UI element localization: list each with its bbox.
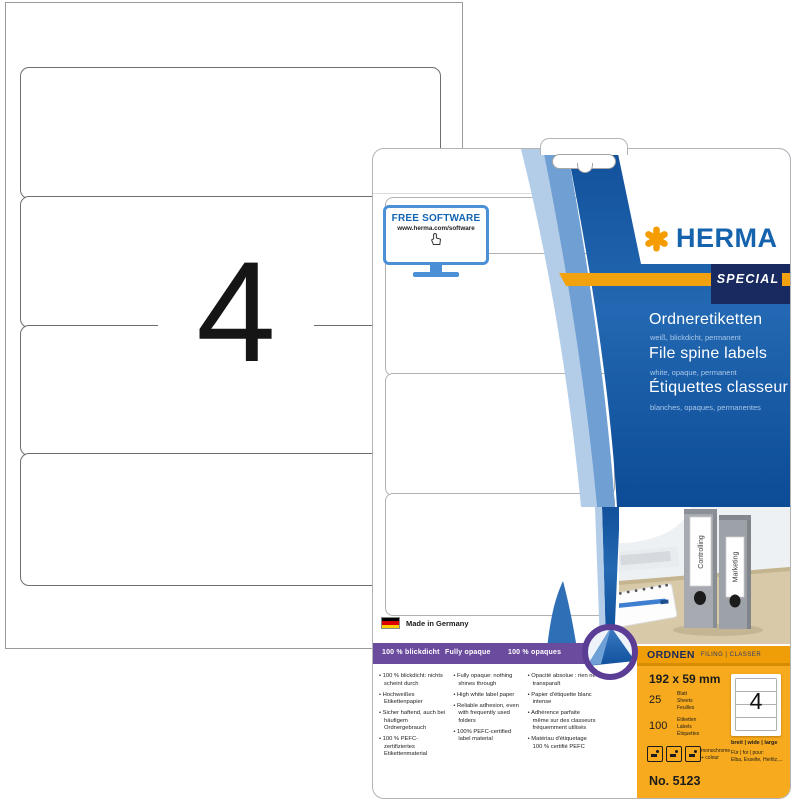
free-software-url: www.herma.com/software bbox=[386, 225, 486, 232]
width-note: breit | wide | large bbox=[731, 740, 777, 746]
feature-header-de: 100 % blickdicht bbox=[382, 649, 440, 656]
brands-note: Elba, Esselte, Herlitz,... bbox=[731, 757, 783, 763]
labels-words: Etiketten Labels Étiquettes bbox=[677, 717, 699, 737]
binder-label-marketing: Marketing bbox=[733, 552, 740, 583]
sheets-word-de: Blatt bbox=[677, 691, 694, 698]
category-bar: ORDNEN FILING | CLASSER bbox=[637, 646, 790, 663]
peel-label-graphic bbox=[580, 622, 640, 682]
swoosh-tail-left bbox=[547, 581, 577, 649]
laser-printer-icon bbox=[666, 746, 682, 762]
labels-per-sheet-count: 4 bbox=[158, 247, 314, 379]
features-fr: Opacité absolue : rien ne transparaît Pa… bbox=[528, 673, 597, 762]
feature-item: 100 % blickdicht: nichts scheint durch bbox=[379, 673, 448, 688]
sheets-words: Blatt Sheets Feuilles bbox=[677, 691, 694, 711]
labels-word-en: Labels bbox=[677, 724, 699, 731]
feature-item: 100% PEFC-certified label material bbox=[453, 729, 522, 744]
herma-star-icon bbox=[643, 225, 670, 253]
feature-item: Fully opaque: nothing shines through bbox=[453, 673, 522, 688]
category-title: ORDNEN bbox=[647, 649, 695, 661]
hand-cursor-icon bbox=[430, 232, 443, 247]
product-title-en: File spine labels bbox=[649, 345, 767, 363]
product-packshot: 4 bbox=[0, 0, 800, 800]
herma-logo: HERMA bbox=[643, 223, 778, 254]
made-in-germany: Made in Germany bbox=[381, 617, 469, 629]
hang-tab bbox=[540, 138, 628, 155]
made-in-label: Made in Germany bbox=[406, 619, 469, 628]
printer-compatibility-icons bbox=[647, 746, 701, 762]
retail-package: Controlling Marketing FREE SOFTWARE www.… bbox=[372, 148, 791, 799]
sheets-count: 25 bbox=[649, 694, 661, 706]
mini-label-row bbox=[735, 717, 777, 731]
binder-label-controlling: Controlling bbox=[698, 535, 705, 569]
product-title-fr: Étiquettes classeur bbox=[649, 379, 788, 397]
monitor-base bbox=[413, 272, 459, 277]
feature-item: Reliable adhesion, even with frequently … bbox=[453, 703, 522, 726]
feature-header-en: Fully opaque bbox=[445, 649, 491, 656]
product-subtitle-fr: blanches, opaques, permanentes bbox=[650, 403, 761, 412]
labels-word-de: Etiketten bbox=[677, 717, 699, 724]
sheets-word-en: Sheets bbox=[677, 698, 694, 705]
free-software-title: FREE SOFTWARE bbox=[386, 213, 486, 224]
label-size: 192 x 59 mm bbox=[649, 672, 720, 686]
monitor-icon: FREE SOFTWARE www.herma.com/software bbox=[383, 205, 489, 265]
category-subtitle: FILING | CLASSER bbox=[701, 652, 761, 658]
brand-name: HERMA bbox=[676, 223, 778, 254]
copier-icon bbox=[647, 746, 663, 762]
labels-count: 100 bbox=[649, 720, 667, 732]
for-note: Für | for | pour: bbox=[731, 750, 764, 756]
german-flag-icon bbox=[381, 617, 400, 629]
spec-panel: 192 x 59 mm 25 Blatt Sheets Feuilles 100… bbox=[637, 666, 790, 798]
feature-item: Papier d'étiquette blanc intense bbox=[528, 692, 597, 707]
feature-item: Sicher haftend, auch bei häufigem Ordner… bbox=[379, 710, 448, 733]
product-subtitle-de: weiß, blickdicht, permanent bbox=[650, 333, 741, 342]
special-badge: SPECIAL bbox=[711, 272, 785, 286]
features-de: 100 % blickdicht: nichts scheint durch H… bbox=[379, 673, 448, 762]
free-software-badge: FREE SOFTWARE www.herma.com/software bbox=[381, 205, 491, 277]
product-subtitle-en: white, opaque, permanent bbox=[650, 368, 737, 377]
monitor-stand bbox=[430, 265, 442, 272]
sheets-word-fr: Feuilles bbox=[677, 705, 694, 712]
inkjet-printer-icon bbox=[685, 746, 701, 762]
feature-item: Matériau d'étiquetage 100 % certifié PEF… bbox=[528, 736, 597, 751]
feature-lists: 100 % blickdicht: nichts scheint durch H… bbox=[379, 673, 597, 762]
feature-header-fr: 100 % opaques bbox=[508, 649, 561, 656]
product-title-de: Ordneretiketten bbox=[649, 311, 762, 329]
features-header-bar: 100 % blickdicht Fully opaque 100 % opaq… bbox=[373, 643, 597, 664]
mini-count: 4 bbox=[731, 688, 781, 715]
labels-word-fr: Étiquettes bbox=[677, 731, 699, 738]
mini-sheet-diagram: 4 bbox=[731, 674, 781, 736]
feature-item: High white label paper bbox=[453, 692, 522, 700]
print-note: monochrome + colour bbox=[701, 748, 729, 761]
feature-item: Adhérence parfaite même sur des classeur… bbox=[528, 710, 597, 733]
feature-item: Hochweißes Etikettenpapier bbox=[379, 692, 448, 707]
features-en: Fully opaque: nothing shines through Hig… bbox=[453, 673, 522, 762]
article-number: No. 5123 bbox=[649, 774, 700, 788]
feature-item: 100 % PEFC-zertifiziertes Etikettenmater… bbox=[379, 736, 448, 759]
euro-slot-patch bbox=[579, 161, 589, 166]
